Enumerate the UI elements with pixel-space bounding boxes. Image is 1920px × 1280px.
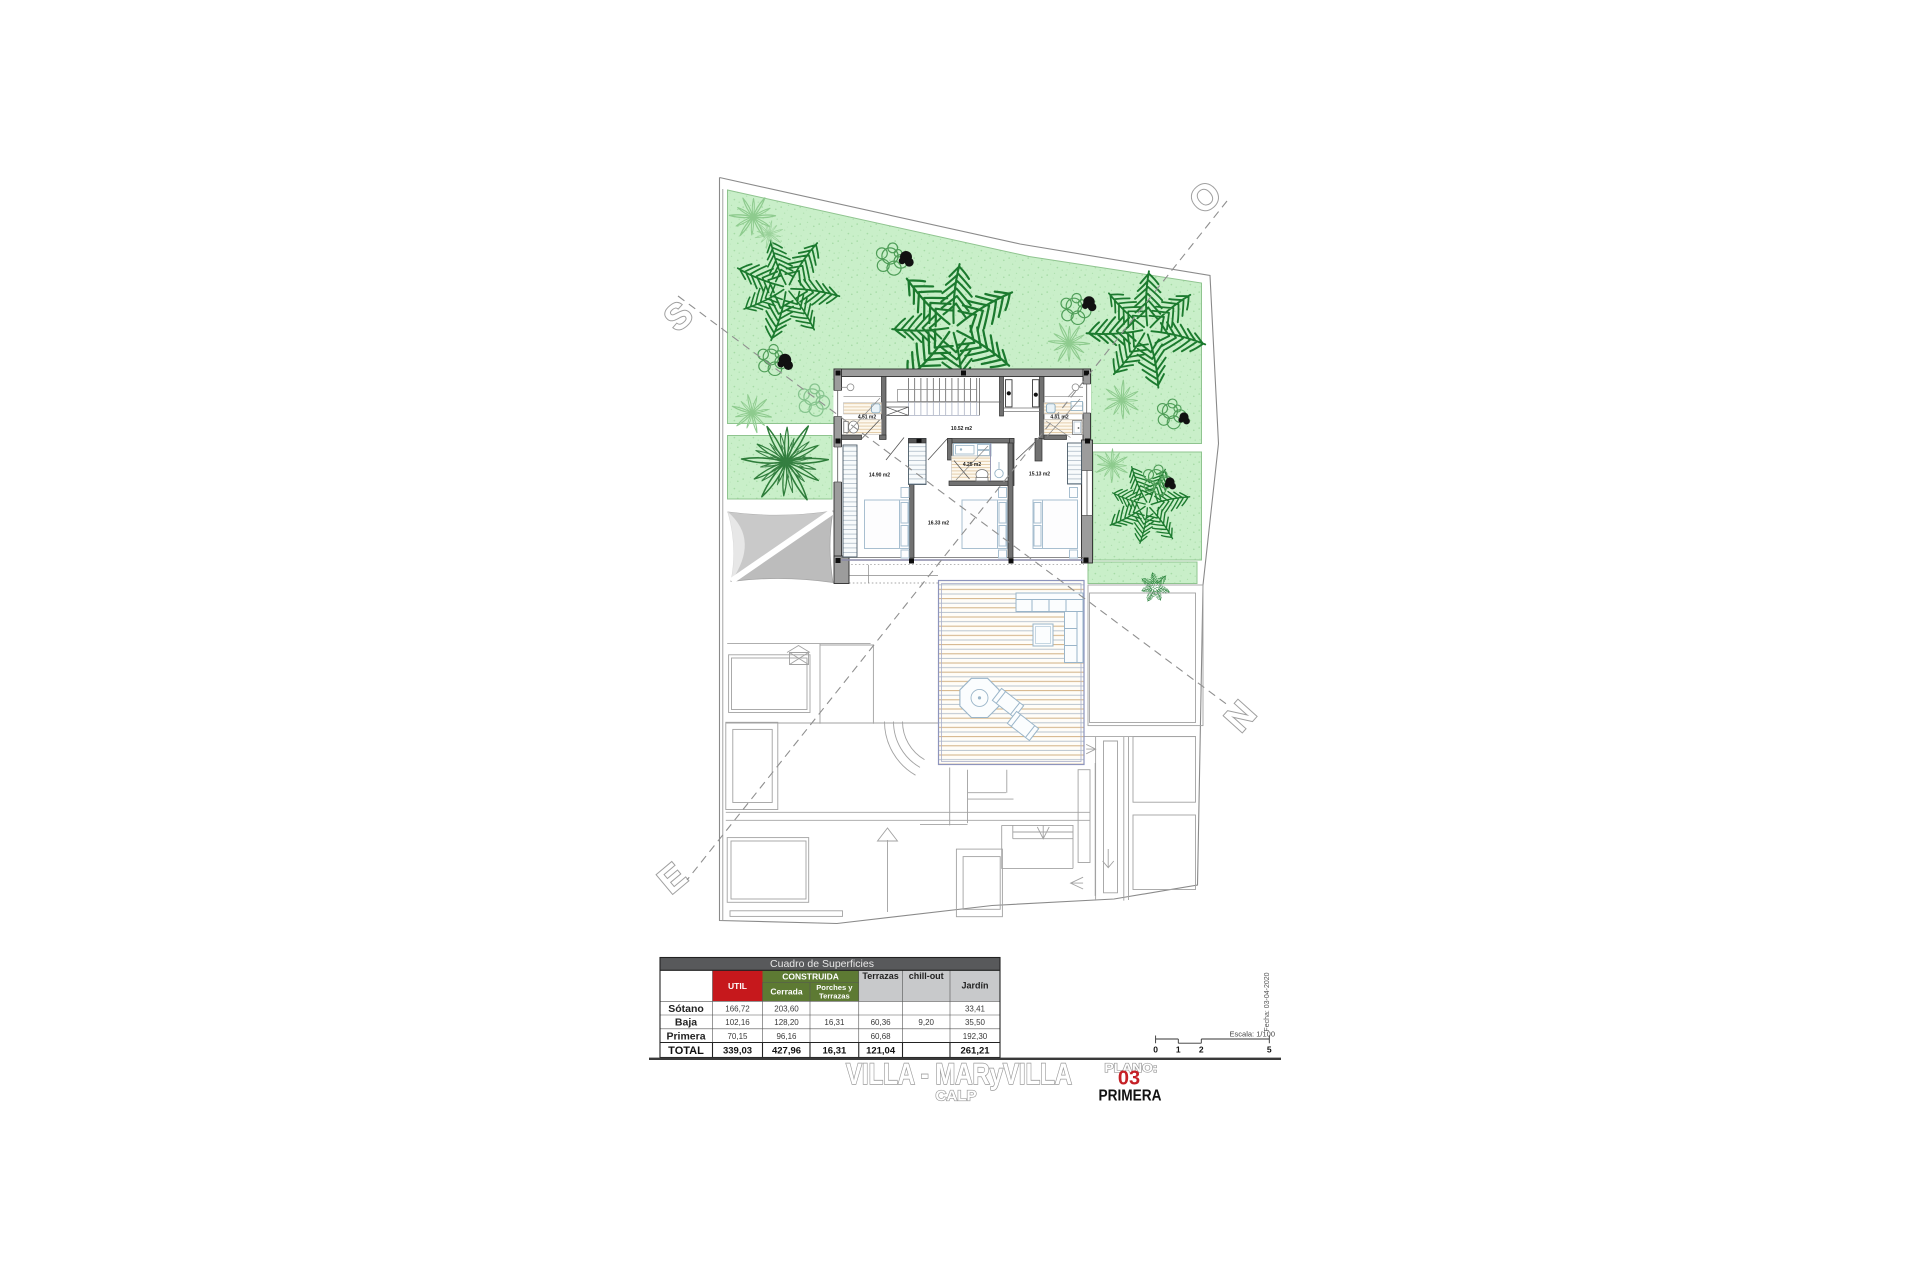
- svg-text:128,20: 128,20: [774, 1018, 799, 1027]
- svg-text:Cuadro de Superficies: Cuadro de Superficies: [770, 958, 874, 970]
- svg-text:427,96: 427,96: [772, 1046, 801, 1057]
- svg-text:4.51 m2: 4.51 m2: [1050, 415, 1069, 421]
- svg-text:5: 5: [1267, 1045, 1272, 1055]
- svg-text:10.52 m2: 10.52 m2: [951, 426, 972, 432]
- svg-text:192,30: 192,30: [963, 1032, 988, 1041]
- svg-text:VILLA - MARyVILLA: VILLA - MARyVILLA: [846, 1058, 1072, 1091]
- svg-text:203,60: 203,60: [774, 1005, 799, 1014]
- svg-text:16,31: 16,31: [824, 1018, 845, 1027]
- svg-text:15.13 m2: 15.13 m2: [1029, 472, 1050, 478]
- svg-text:0: 0: [1153, 1045, 1158, 1055]
- svg-text:Cerrada: Cerrada: [770, 987, 802, 997]
- svg-text:261,21: 261,21: [960, 1046, 990, 1057]
- svg-text:14.90 m2: 14.90 m2: [869, 473, 890, 479]
- svg-text:Primera: Primera: [666, 1031, 705, 1043]
- svg-text:Escala: 1/100: Escala: 1/100: [1230, 1030, 1275, 1039]
- svg-text:60,36: 60,36: [871, 1018, 892, 1027]
- svg-text:1: 1: [1176, 1045, 1181, 1055]
- svg-text:339,03: 339,03: [723, 1046, 752, 1057]
- svg-text:CONSTRUIDA: CONSTRUIDA: [782, 972, 839, 982]
- svg-text:166,72: 166,72: [725, 1005, 750, 1014]
- svg-text:chill-out: chill-out: [909, 971, 944, 981]
- svg-text:16,31: 16,31: [823, 1046, 847, 1057]
- svg-text:9,20: 9,20: [918, 1018, 934, 1027]
- svg-text:Terrazas: Terrazas: [819, 992, 850, 1001]
- svg-text:4.51 m2: 4.51 m2: [858, 415, 877, 421]
- svg-text:03: 03: [1118, 1068, 1140, 1090]
- svg-text:102,16: 102,16: [725, 1018, 750, 1027]
- svg-text:60,68: 60,68: [871, 1032, 892, 1041]
- svg-text:35,50: 35,50: [965, 1018, 986, 1027]
- svg-text:PRIMERA: PRIMERA: [1099, 1088, 1162, 1105]
- svg-text:Baja: Baja: [675, 1017, 697, 1029]
- svg-text:Jardín: Jardín: [961, 981, 988, 991]
- svg-text:121,04: 121,04: [866, 1046, 896, 1057]
- svg-text:96,16: 96,16: [776, 1032, 797, 1041]
- svg-text:2: 2: [1199, 1045, 1204, 1055]
- svg-text:70,15: 70,15: [727, 1032, 748, 1041]
- svg-text:Fecha: 03-04-2020: Fecha: 03-04-2020: [1264, 972, 1271, 1031]
- svg-text:33,41: 33,41: [965, 1005, 986, 1014]
- svg-text:UTIL: UTIL: [728, 981, 747, 991]
- svg-text:Terrazas: Terrazas: [862, 971, 898, 981]
- svg-text:4.25 m2: 4.25 m2: [963, 462, 982, 468]
- svg-text:Sótano: Sótano: [668, 1003, 704, 1015]
- svg-text:16.33 m2: 16.33 m2: [928, 521, 949, 527]
- svg-text:CALP: CALP: [936, 1088, 977, 1105]
- svg-text:TOTAL: TOTAL: [668, 1045, 704, 1057]
